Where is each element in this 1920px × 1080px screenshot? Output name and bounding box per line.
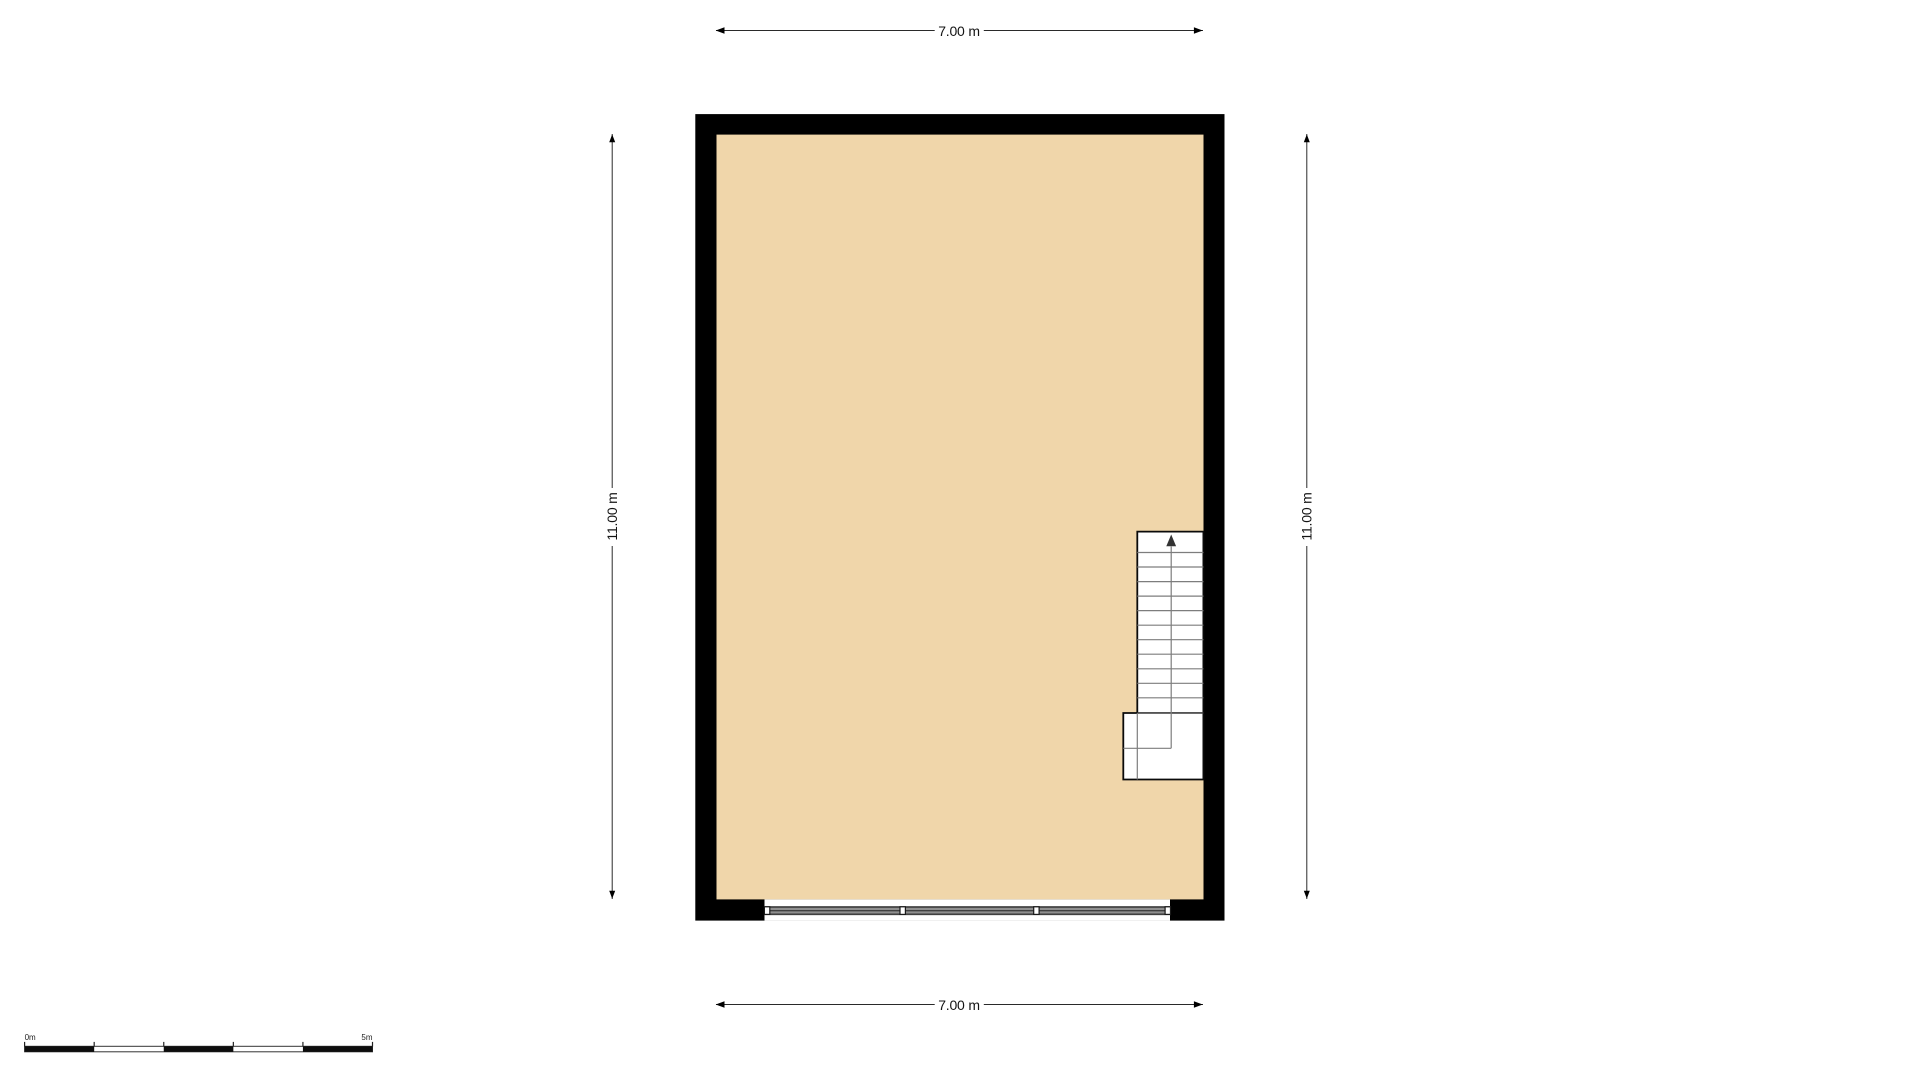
svg-text:11.00 m: 11.00 m: [1299, 492, 1315, 540]
svg-text:0m: 0m: [25, 1033, 36, 1042]
svg-text:11.00 m: 11.00 m: [604, 492, 620, 540]
svg-text:7.00 m: 7.00 m: [938, 997, 980, 1013]
svg-text:7.00 m: 7.00 m: [938, 23, 980, 39]
svg-text:5m: 5m: [361, 1033, 372, 1042]
